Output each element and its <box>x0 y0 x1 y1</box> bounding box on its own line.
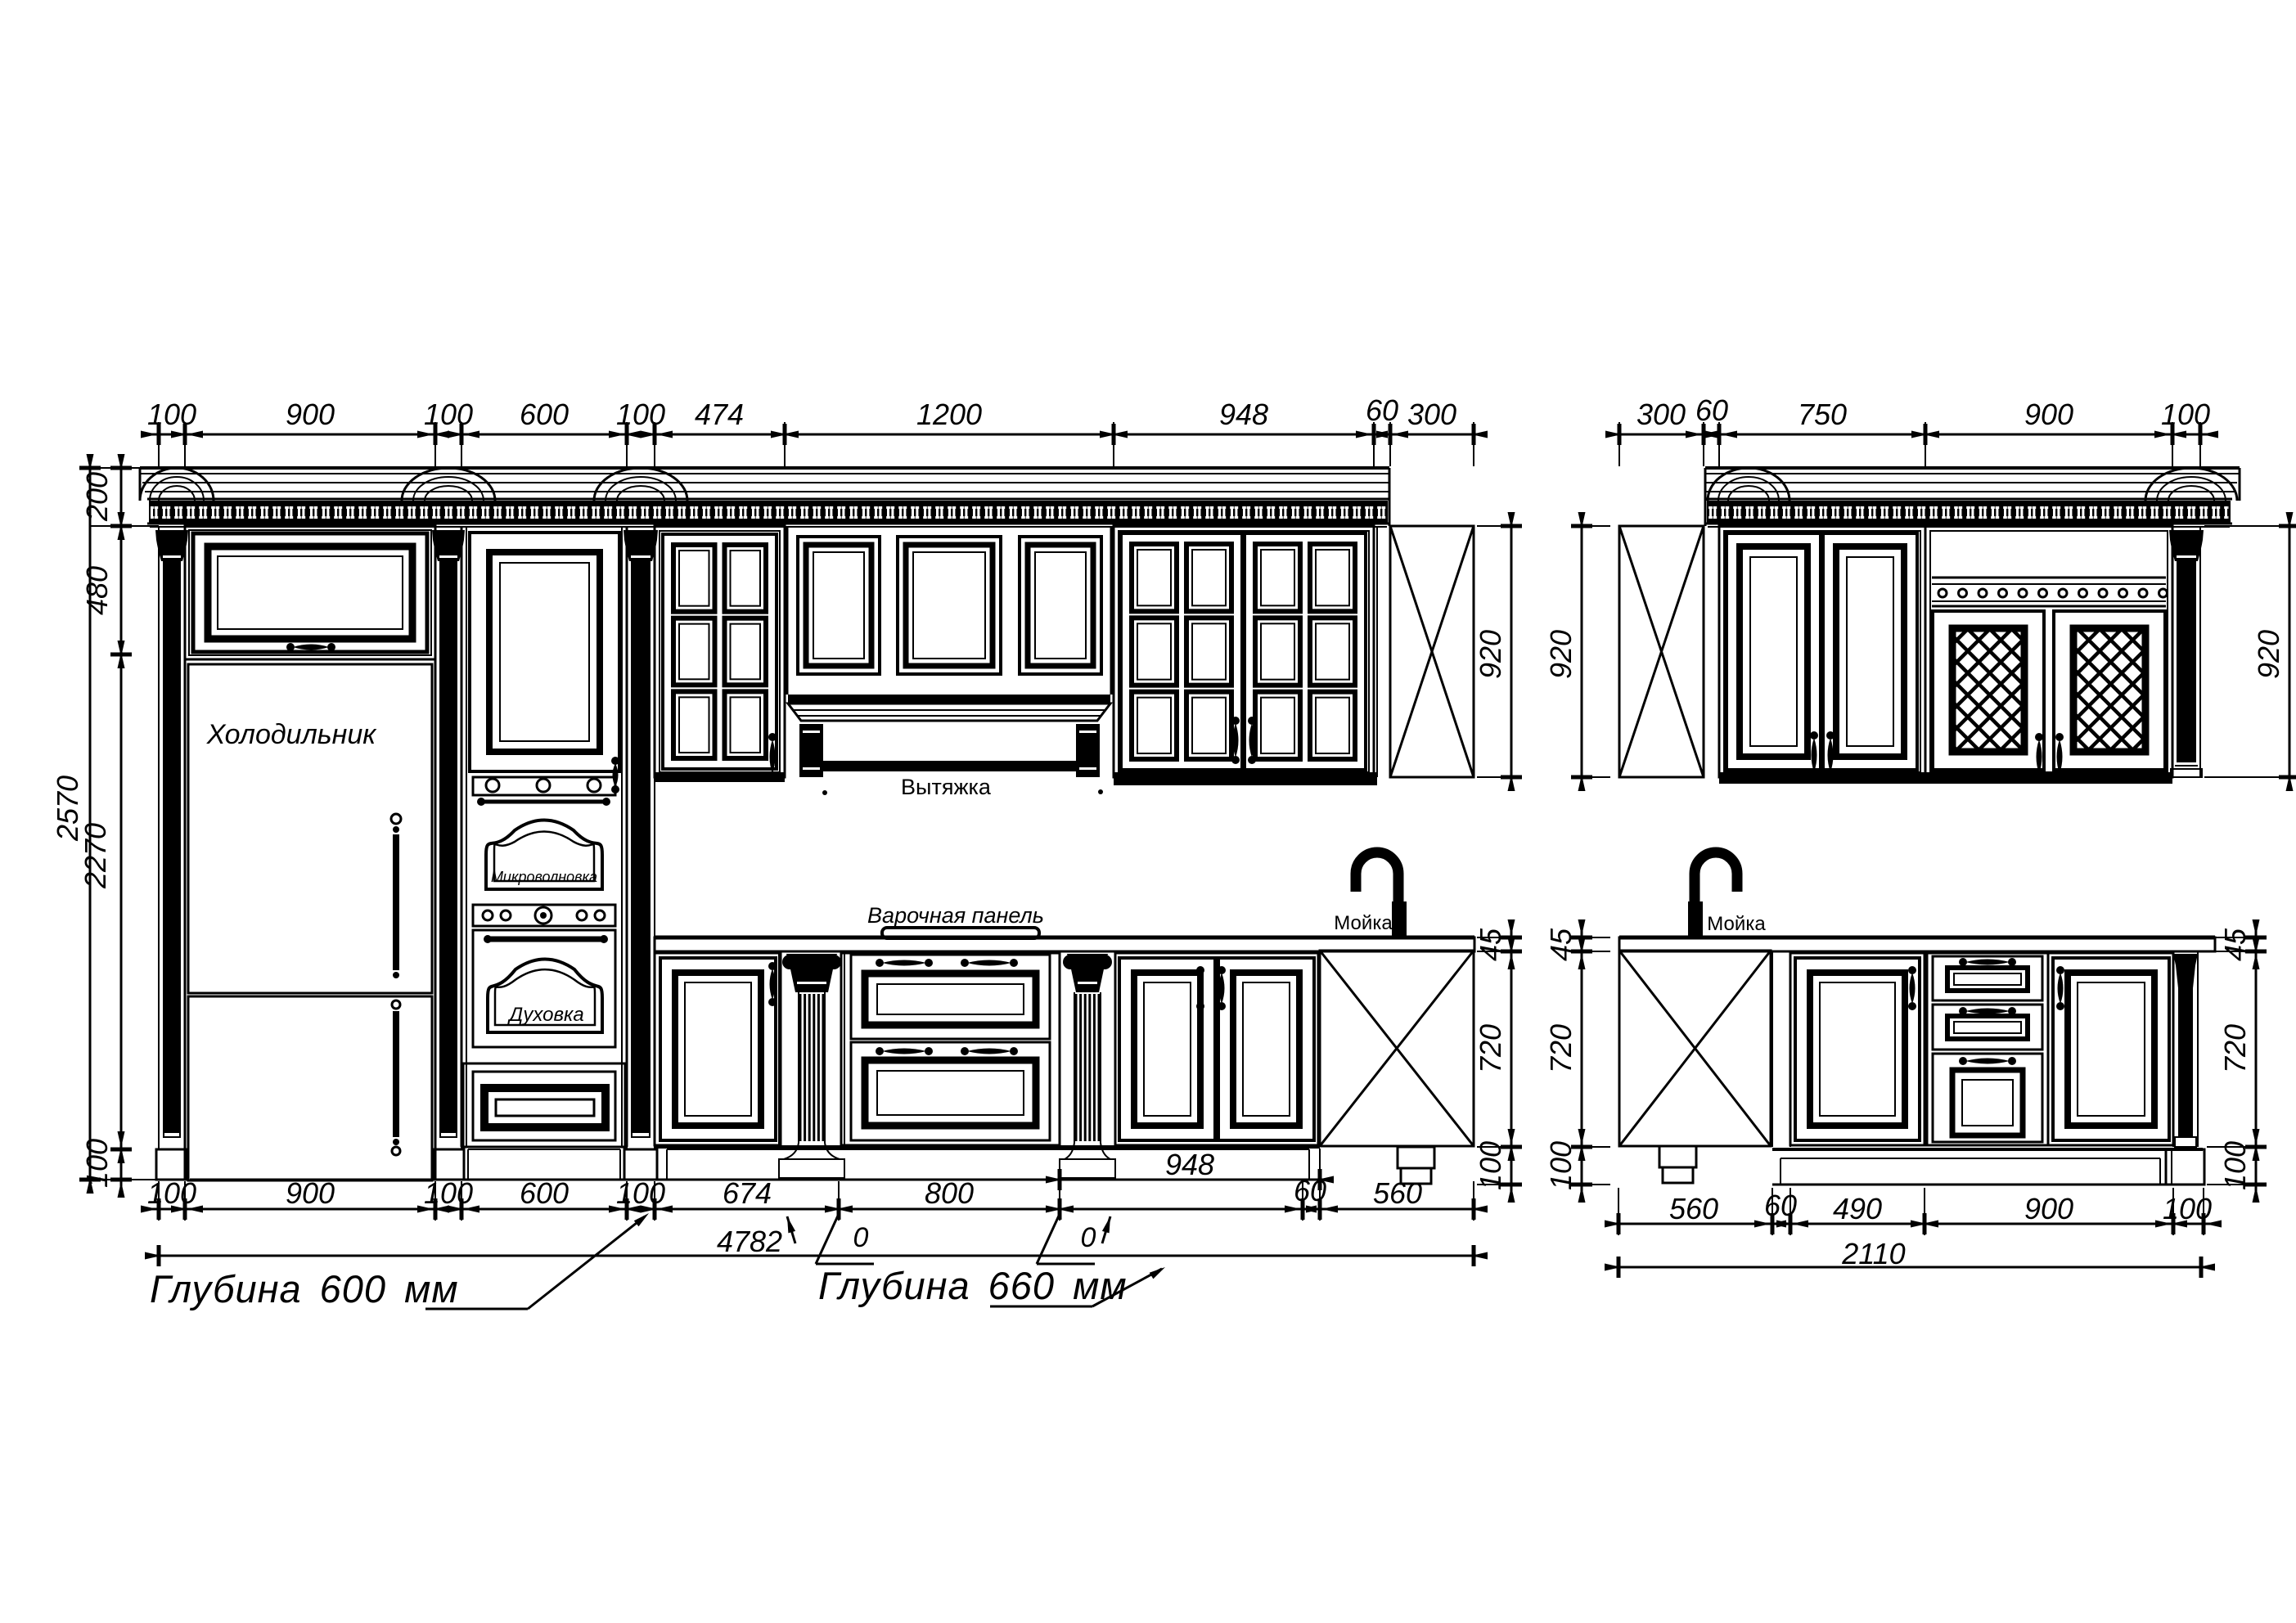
svg-text:100: 100 <box>147 1176 196 1210</box>
svg-text:720: 720 <box>1474 1024 1507 1073</box>
svg-text:Духовка: Духовка <box>506 1004 583 1026</box>
svg-text:720: 720 <box>2218 1024 2252 1073</box>
svg-text:2110: 2110 <box>1841 1237 1905 1270</box>
svg-text:Мойка: Мойка <box>1334 912 1393 934</box>
svg-text:948: 948 <box>1219 398 1268 431</box>
svg-text:100: 100 <box>616 1176 665 1210</box>
svg-text:920: 920 <box>2252 630 2285 679</box>
svg-text:100: 100 <box>2161 398 2210 431</box>
svg-text:800: 800 <box>925 1176 974 1210</box>
svg-text:920: 920 <box>1544 630 1578 679</box>
svg-text:60: 60 <box>1366 393 1398 427</box>
svg-text:100: 100 <box>424 1176 473 1210</box>
svg-text:Мойка: Мойка <box>1707 913 1766 935</box>
svg-text:60: 60 <box>1764 1189 1797 1222</box>
svg-text:300: 300 <box>1636 398 1686 431</box>
svg-text:100: 100 <box>1474 1141 1507 1190</box>
svg-text:100: 100 <box>2218 1141 2252 1190</box>
svg-text:600: 600 <box>520 398 569 431</box>
svg-text:490: 490 <box>1833 1192 1882 1225</box>
svg-text:560: 560 <box>1373 1176 1422 1210</box>
svg-text:Варочная панель: Варочная панель <box>867 903 1044 928</box>
svg-text:900: 900 <box>286 398 335 431</box>
svg-text:Холодильник: Холодильник <box>206 719 378 750</box>
svg-text:45: 45 <box>1544 928 1578 961</box>
svg-text:474: 474 <box>695 398 744 431</box>
svg-text:100: 100 <box>616 398 665 431</box>
svg-text:948: 948 <box>1165 1148 1214 1181</box>
svg-text:0: 0 <box>853 1222 869 1253</box>
svg-text:900: 900 <box>2024 398 2073 431</box>
svg-text:45: 45 <box>2218 928 2252 961</box>
svg-text:100: 100 <box>2163 1192 2212 1225</box>
svg-text:900: 900 <box>286 1176 335 1210</box>
svg-text:300: 300 <box>1407 398 1456 431</box>
svg-text:900: 900 <box>2024 1192 2073 1225</box>
svg-text:2270: 2270 <box>79 823 112 889</box>
svg-text:4782: 4782 <box>717 1225 782 1258</box>
svg-text:100: 100 <box>1544 1141 1578 1190</box>
svg-text:674: 674 <box>723 1176 772 1210</box>
svg-text:Глубина 600 мм: Глубина 600 мм <box>150 1267 459 1311</box>
svg-text:920: 920 <box>1474 630 1507 679</box>
svg-text:100: 100 <box>147 398 196 431</box>
svg-text:100: 100 <box>80 1139 114 1188</box>
svg-text:600: 600 <box>520 1176 569 1210</box>
svg-text:Глубина 660 мм: Глубина 660 мм <box>818 1264 1128 1307</box>
svg-text:100: 100 <box>424 398 473 431</box>
svg-text:750: 750 <box>1798 398 1847 431</box>
svg-text:Вытяжка: Вытяжка <box>901 775 992 799</box>
svg-text:720: 720 <box>1544 1024 1578 1073</box>
svg-text:200: 200 <box>80 472 114 522</box>
svg-text:0: 0 <box>1081 1222 1096 1253</box>
svg-text:1200: 1200 <box>916 398 982 431</box>
svg-text:480: 480 <box>80 566 114 615</box>
svg-text:Микроволновка: Микроволновка <box>491 869 597 885</box>
svg-text:45: 45 <box>1474 928 1507 961</box>
svg-text:60: 60 <box>1695 393 1728 427</box>
svg-text:560: 560 <box>1669 1192 1718 1225</box>
